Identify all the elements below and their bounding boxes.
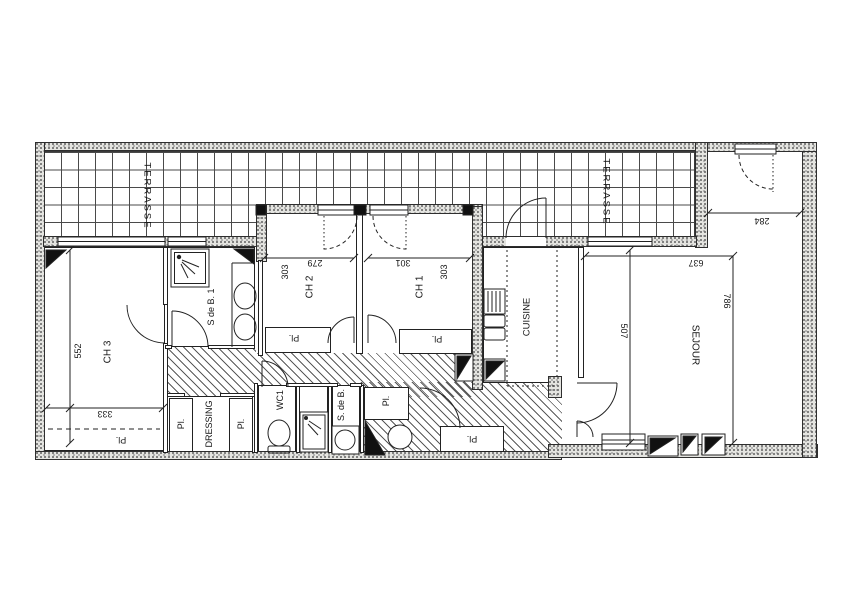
sdb2-closet-label: Pl. xyxy=(381,396,391,407)
ch2-label: CH 2 xyxy=(305,276,316,299)
ch3-closet-label: Pl. xyxy=(116,435,127,445)
cuisine-label: CUISINE xyxy=(522,298,533,337)
water-heater-icon xyxy=(388,425,412,449)
double-washbasin-icon xyxy=(232,263,256,347)
ch3-label: CH 3 xyxy=(103,341,114,364)
ch3-dim-333: 333 xyxy=(97,409,112,419)
sdb2-label: S. de B. xyxy=(336,389,346,421)
shower-icon xyxy=(171,249,209,287)
sejour-dim-637: 637 xyxy=(688,258,703,268)
ch1-dim-303: 303 xyxy=(439,264,449,279)
sejour-dim-284: 284 xyxy=(754,216,769,226)
sejour-dim-786: 786 xyxy=(722,293,732,308)
ch1-dim-301: 301 xyxy=(395,258,410,268)
window-swing-axes xyxy=(324,155,773,250)
dressing-closet-left-label: Pl. xyxy=(176,419,186,430)
doors xyxy=(127,198,617,437)
washbasin-icon xyxy=(332,426,359,454)
wc-label: WC1 xyxy=(275,390,285,410)
ch3-dim-552: 552 xyxy=(73,343,83,358)
terrace-right-label: TERRASSE xyxy=(601,158,612,225)
dressing-label: DRESSING xyxy=(204,400,214,447)
kitchen-sink-icon xyxy=(484,315,505,340)
ch1-closet-label: Pl. xyxy=(432,334,443,344)
floor-plan-page: TERRASSE TERRASSE CH 3 552 333 Pl. S de … xyxy=(0,0,841,595)
entry-closet-label: Pl. xyxy=(467,434,478,444)
ch2-dim-279: 279 xyxy=(307,258,322,268)
sejour-label: SEJOUR xyxy=(690,325,701,366)
sdb1-label: S de B. 1 xyxy=(206,288,216,325)
ch2-dim-303: 303 xyxy=(280,264,290,279)
dressing-closet-right-label: Pl. xyxy=(236,419,246,430)
sejour-dim-507: 507 xyxy=(619,323,629,338)
cooktop-icon xyxy=(484,289,505,314)
terrace-left-label: TERRASSE xyxy=(142,162,153,229)
ch1-label: CH 1 xyxy=(415,276,426,299)
shower2-icon xyxy=(300,412,328,452)
fixtures xyxy=(171,249,557,454)
toilet-icon xyxy=(268,420,290,453)
ch2-closet-label: Pl. xyxy=(289,333,300,343)
window-swings xyxy=(324,155,773,249)
